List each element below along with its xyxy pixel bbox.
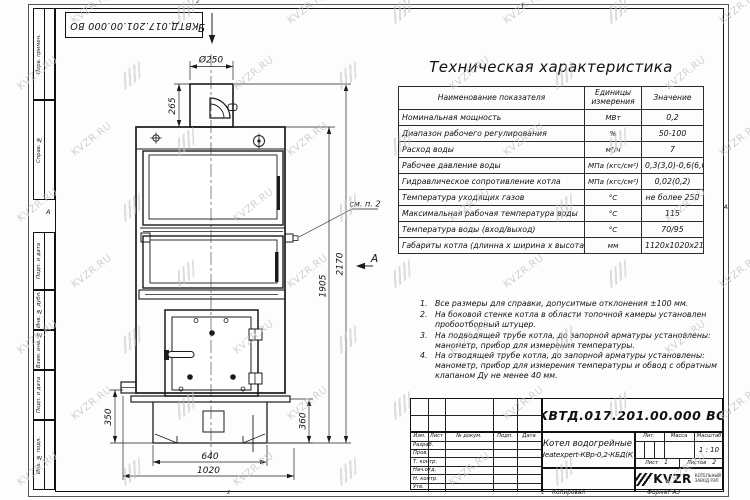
- view-label-b: Б: [198, 23, 205, 35]
- callout-see-note-2: см. п. 2: [350, 200, 381, 209]
- view-label-a: А: [370, 253, 378, 265]
- dim-base-width: 640: [201, 452, 218, 462]
- drawing-sheet: KVZR.RUKVZR.RUKVZR.RUKVZR.RUKVZR.RUKVZR.…: [0, 0, 750, 500]
- dim-total-height: 2170: [336, 252, 346, 275]
- dim-body-height: 1905: [319, 274, 329, 297]
- dim-chimney: 265: [168, 97, 178, 114]
- dim-overall-width: 1020: [197, 466, 220, 476]
- dim-right-height: 360: [299, 412, 309, 429]
- boiler-drawing: Ø250 265 2170 1905 350 360 640 1020 см. …: [0, 0, 750, 500]
- dim-diameter: Ø250: [198, 55, 224, 66]
- dim-base-height: 350: [104, 408, 114, 425]
